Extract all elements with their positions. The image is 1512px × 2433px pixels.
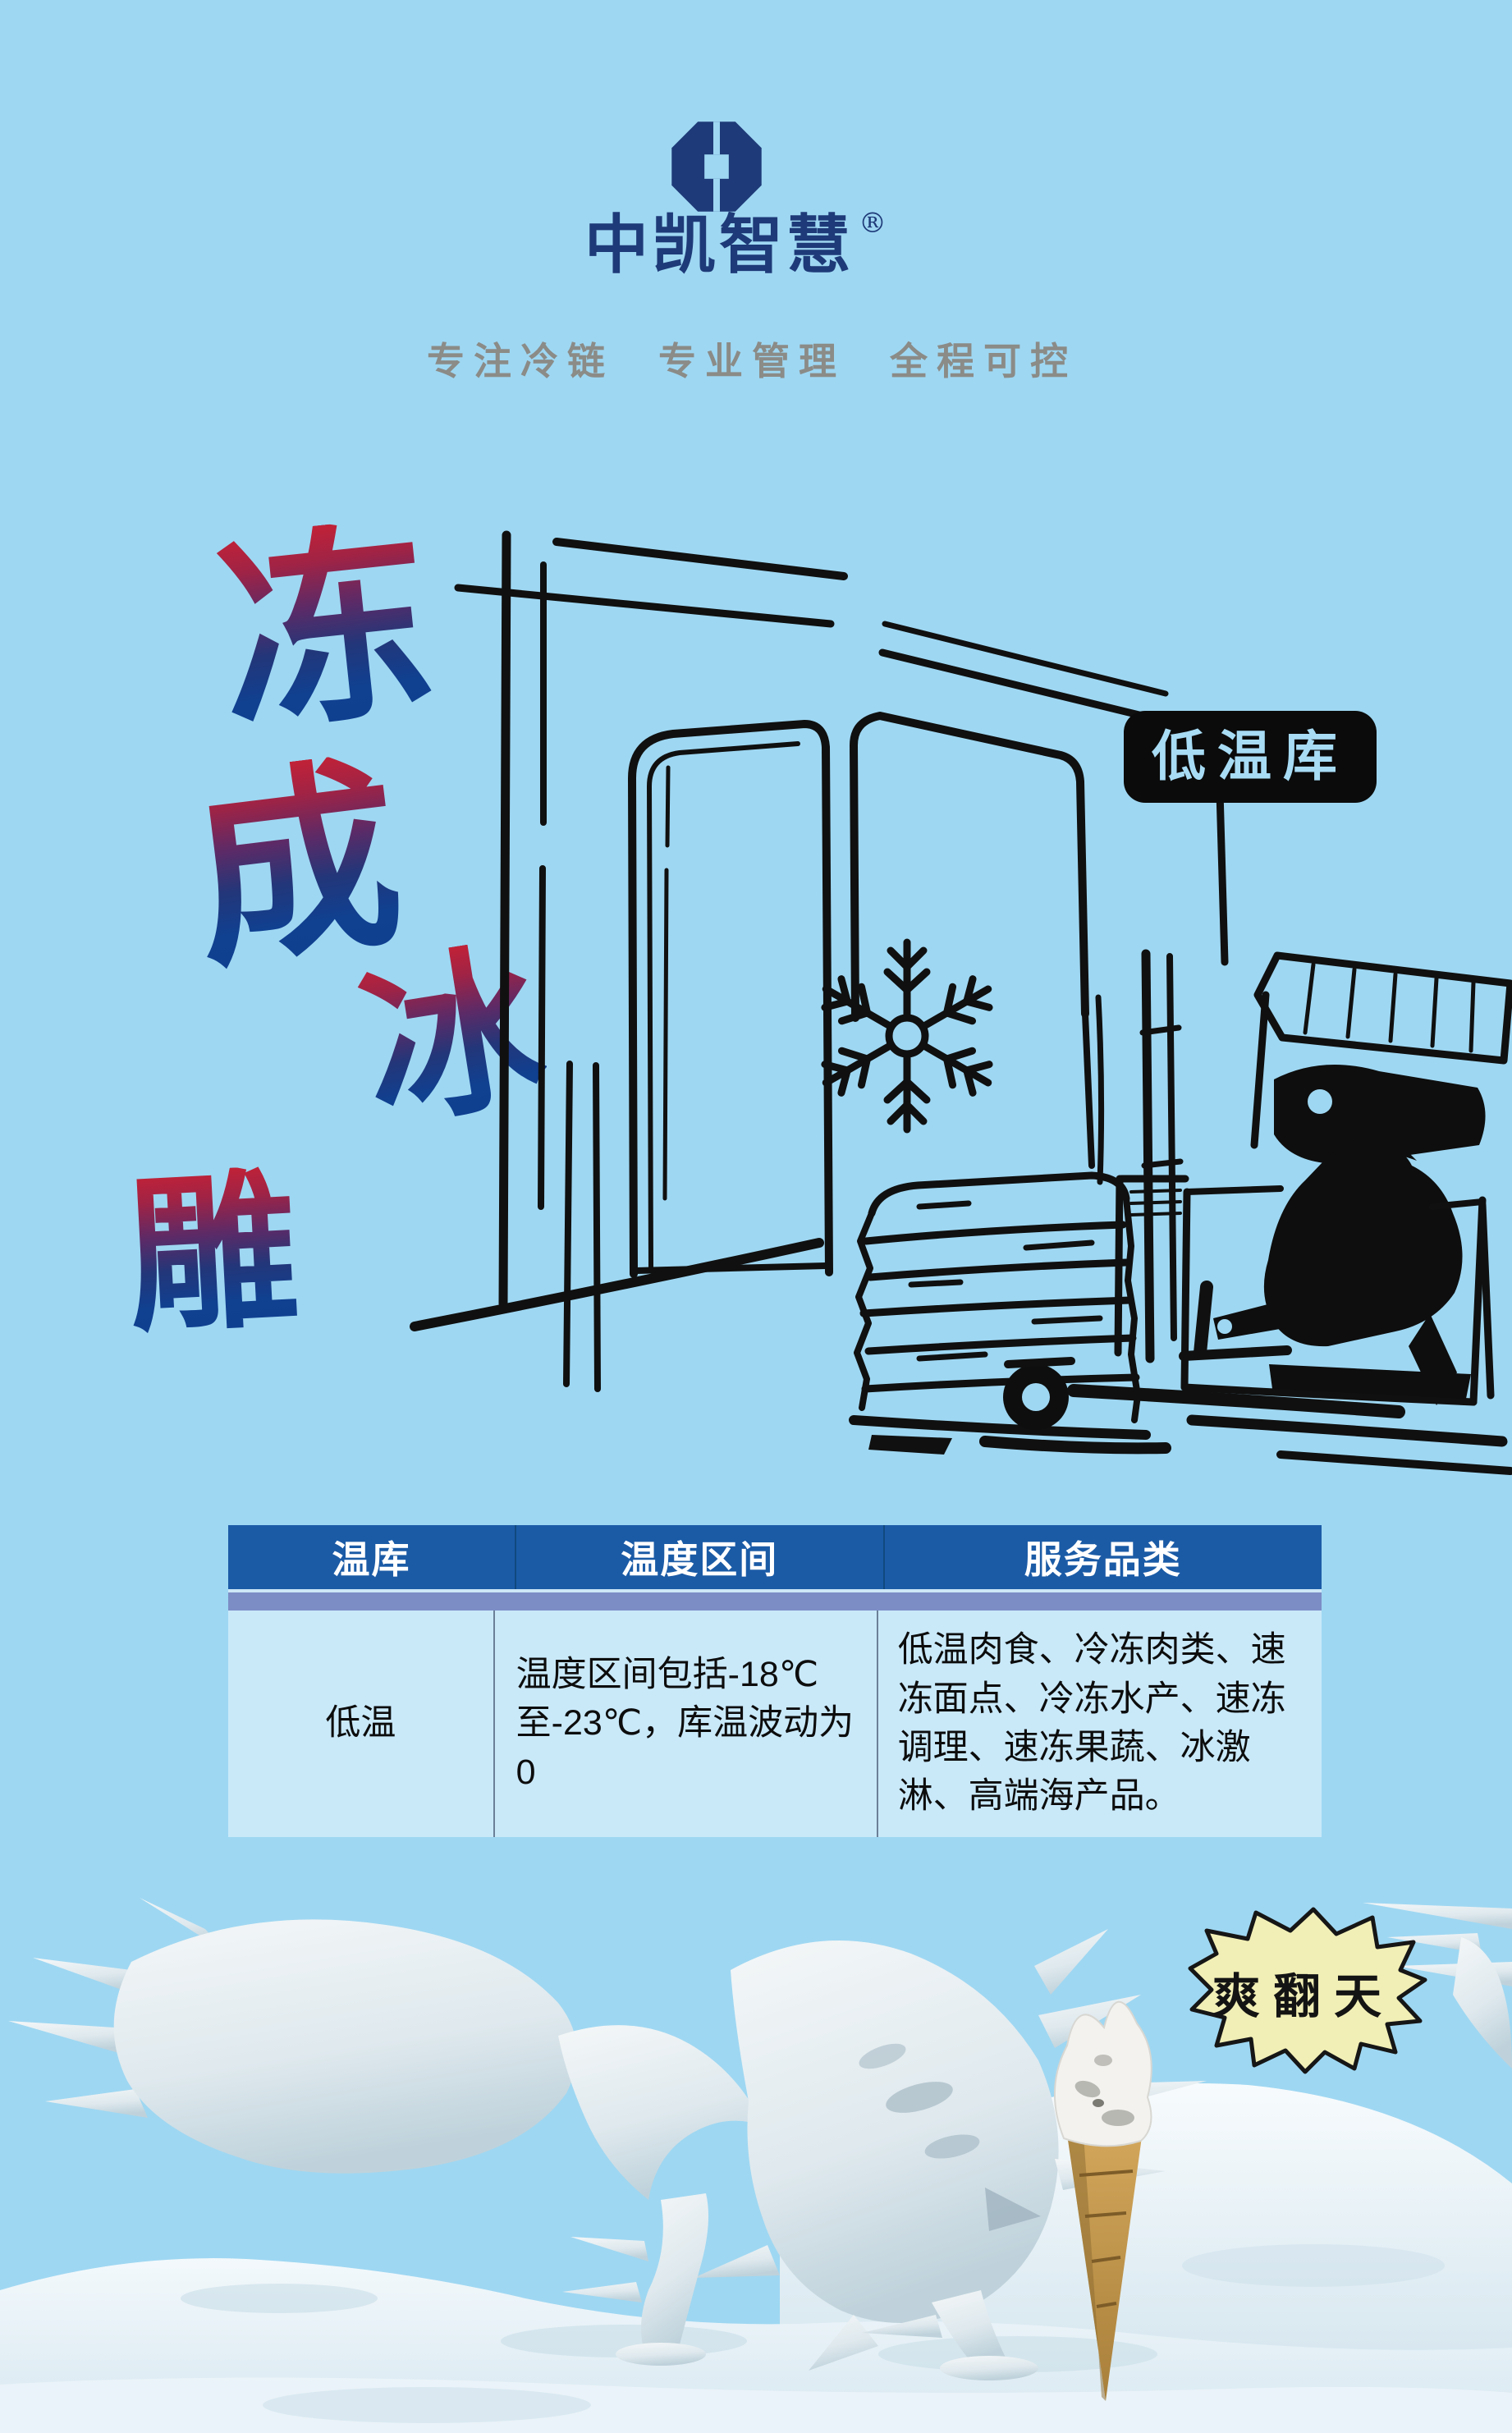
burst-badge: 爽翻天: [1190, 1909, 1425, 2072]
table-header-service-categories: 服务品类: [883, 1525, 1322, 1589]
table-header-warehouse: 温库: [228, 1525, 515, 1589]
burst-label: 爽翻天: [1212, 1968, 1395, 2024]
temperature-table: 温库 温度区间 服务品类 低温 温度区间包括-18℃至-23℃，库温波动为0 低…: [228, 1525, 1322, 1837]
driver-silhouette: [1213, 1137, 1463, 1405]
cell-temperature-range: 温度区间包括-18℃至-23℃，库温波动为0: [493, 1611, 877, 1837]
table-divider-strip: [228, 1589, 1322, 1611]
table-header-temperature-range: 温度区间: [515, 1525, 883, 1589]
snowflake-icon: [816, 942, 997, 1129]
low-temp-sign: 低温库: [1124, 711, 1377, 803]
table-header-row: 温库 温度区间 服务品类: [228, 1525, 1322, 1589]
scene-art: 低温库: [0, 0, 1512, 2433]
forklift-drawing: [1003, 954, 1510, 1471]
table-row: 低温 温度区间包括-18℃至-23℃，库温波动为0 低温肉食、冷冻肉类、速冻面点…: [228, 1611, 1322, 1837]
low-temp-sign-label: 低温库: [1152, 724, 1349, 788]
cell-warehouse: 低温: [228, 1611, 493, 1837]
cell-service-categories: 低温肉食、冷冻肉类、速冻面点、冷冻水产、速冻调理、速冻果蔬、冰激淋、高端海产品。: [877, 1611, 1322, 1837]
